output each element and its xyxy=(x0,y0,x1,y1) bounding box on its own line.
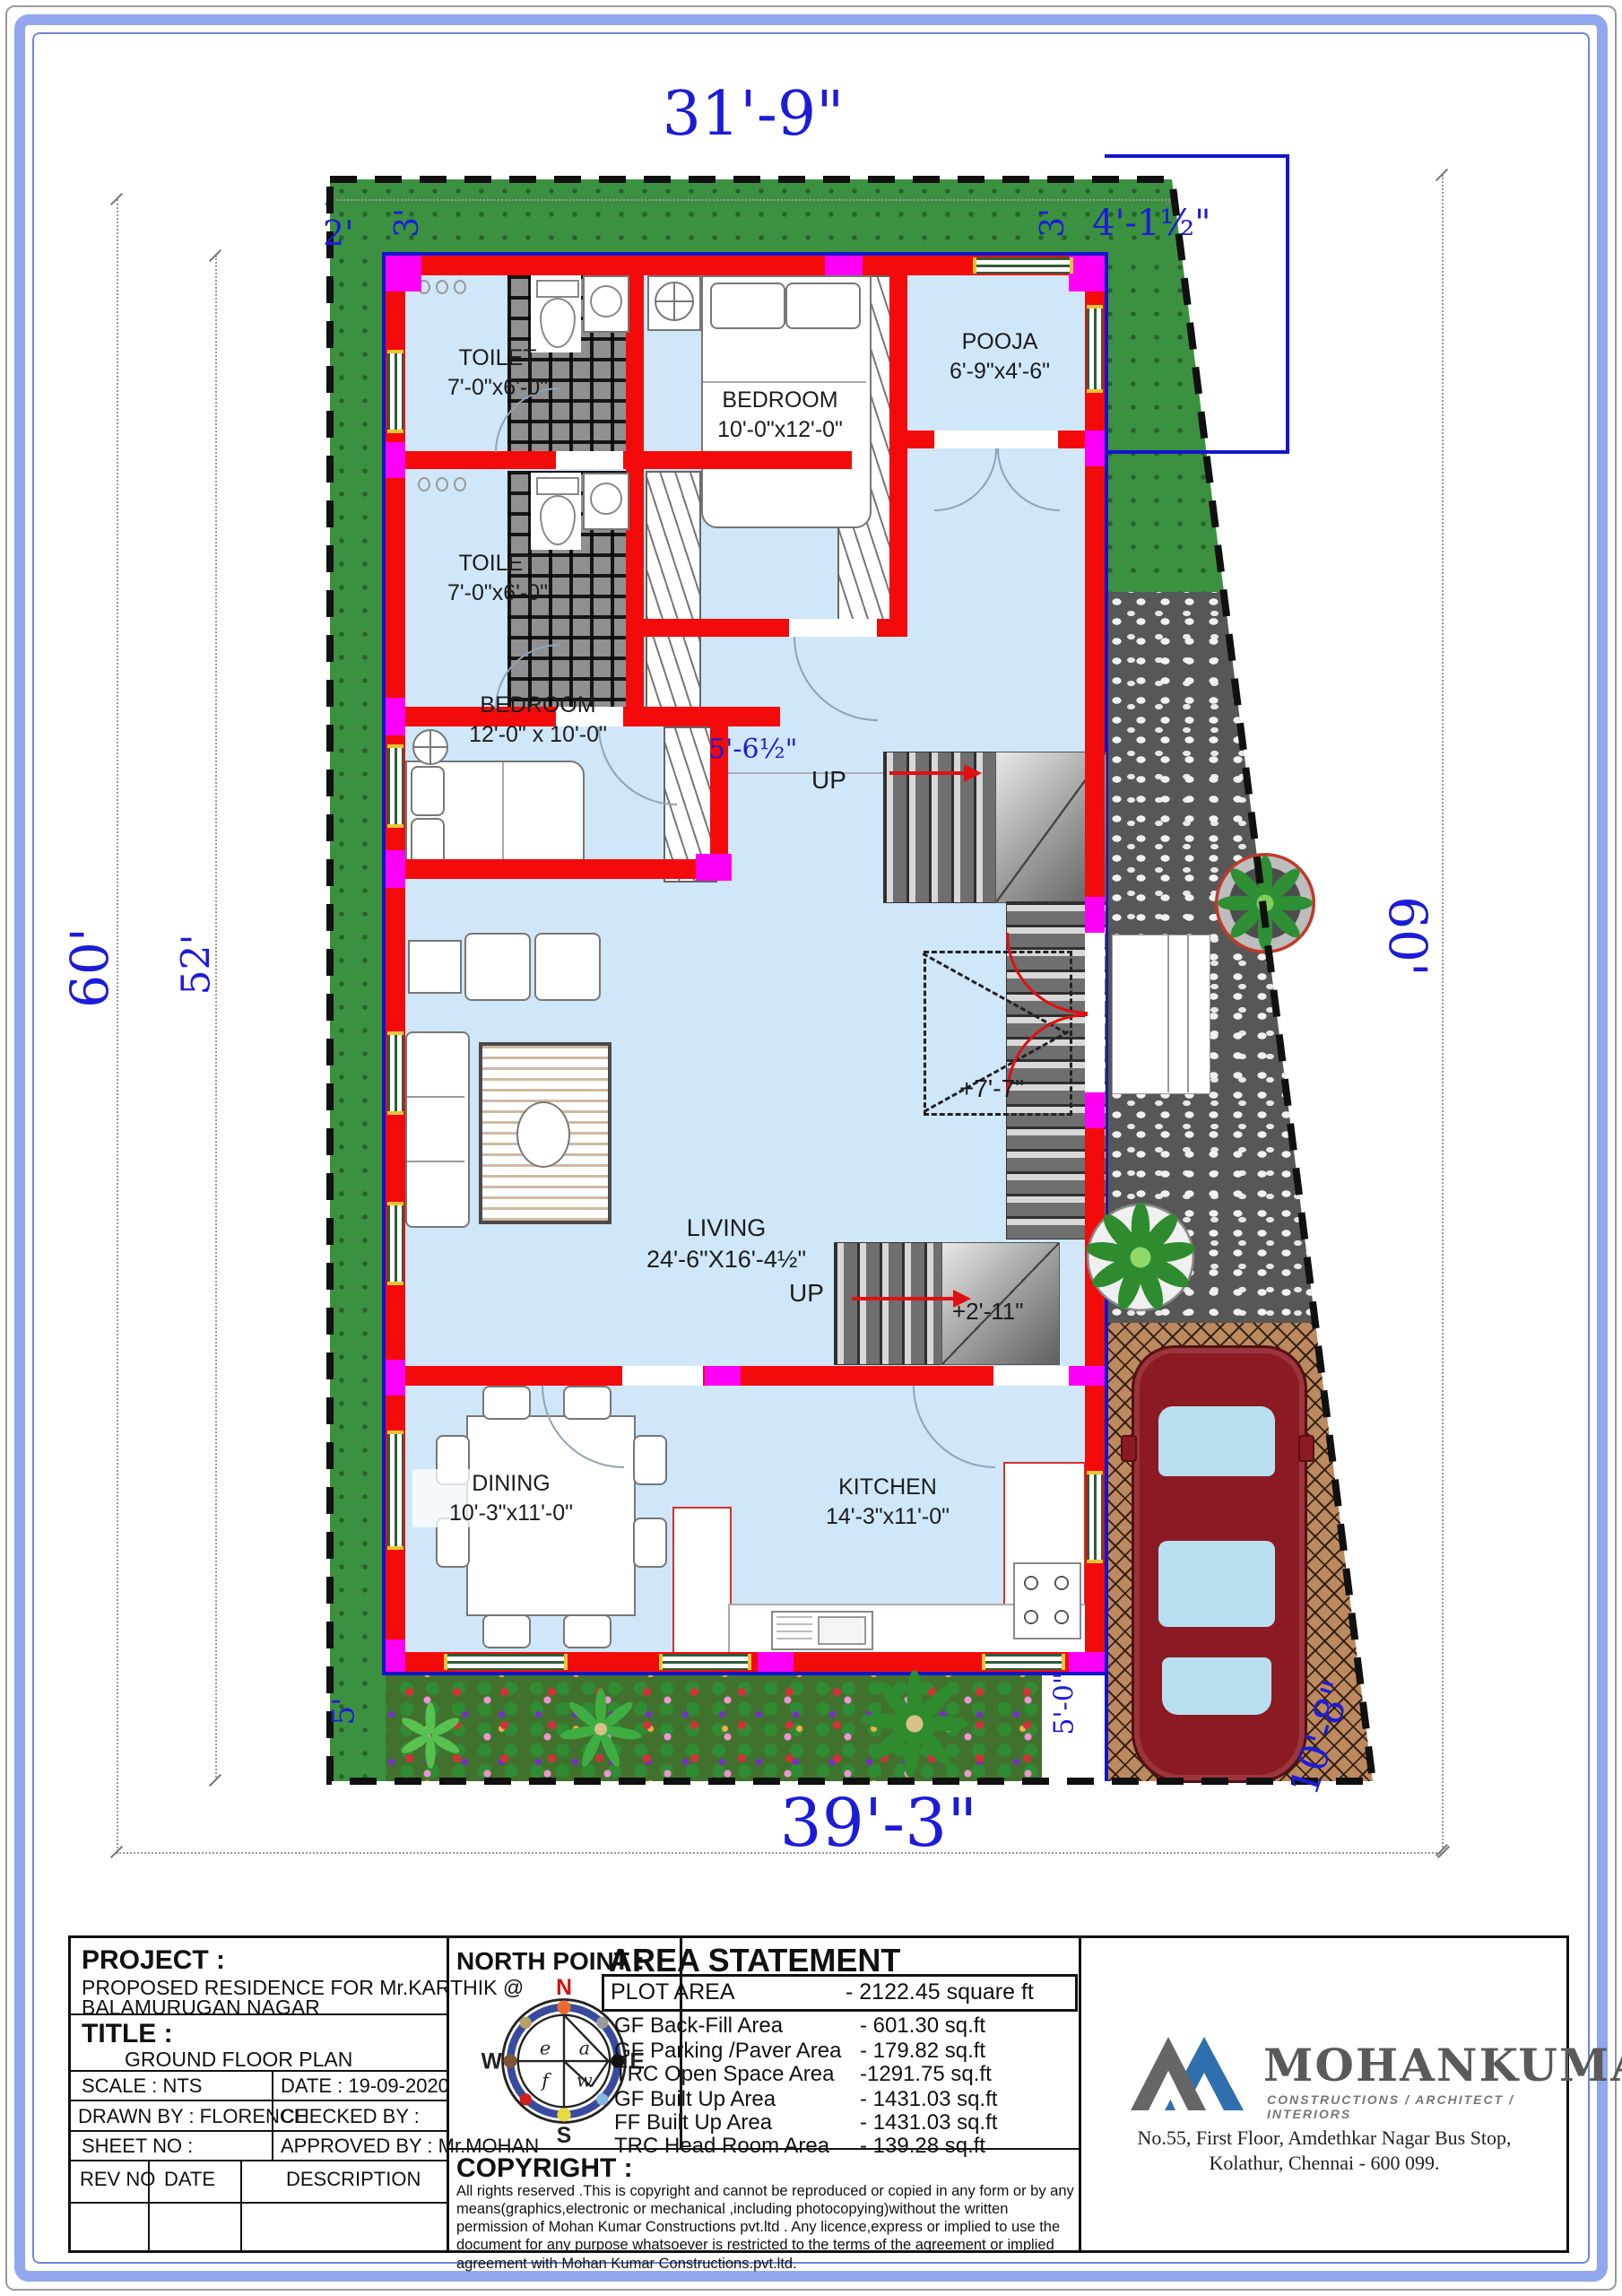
tb-divider xyxy=(1079,1938,1081,2250)
room-label-kitchen: KITCHEN 14'-3"x11'-0" xyxy=(762,1473,1013,1531)
lawn-left-strip xyxy=(330,179,386,1781)
kitchen-sink-bowl xyxy=(818,1616,866,1645)
dining-chair xyxy=(633,1435,667,1485)
room-label-toilet2: TOILET 7'-0"x6'-0" xyxy=(408,549,587,607)
toilet1-basin-bowl xyxy=(590,285,622,317)
area-row-label: FF Built Up Area xyxy=(614,2110,772,2135)
junction xyxy=(386,850,405,888)
tb-row-line xyxy=(71,2202,447,2204)
tb-row-line xyxy=(71,2130,447,2132)
junction xyxy=(1069,256,1105,291)
stair-arrow-1 xyxy=(889,771,966,775)
terrace-outline-right xyxy=(1286,154,1289,453)
dim-top-left-setback: 3' xyxy=(389,208,426,238)
room-size: 14'-3"x11'-0" xyxy=(762,1502,1013,1532)
junction xyxy=(386,442,405,478)
junction xyxy=(386,256,421,291)
junction xyxy=(696,854,732,881)
window-living-1 xyxy=(387,1031,403,1115)
palm-plant xyxy=(861,1670,968,1778)
floor-plan: TOILET 7'-0"x6'-0" BEDROOM 10'-0"x12'-0"… xyxy=(0,0,1622,1910)
company-address-1: No.55, First Floor, Amdethkar Nagar Bus … xyxy=(1082,2126,1566,2150)
copyright-label: COPYRIGHT : xyxy=(456,2153,633,2184)
dim-top-right-setback: 3' xyxy=(1035,208,1071,238)
room-size: 10'-3"x11'-0" xyxy=(412,1499,610,1528)
room-size: 24'-6"X16'-4½" xyxy=(556,1244,897,1275)
junction xyxy=(386,1360,405,1396)
compass-n: N xyxy=(556,1976,572,2000)
compass-inner-e: e xyxy=(540,2037,551,2058)
living-chair-1 xyxy=(464,933,531,1001)
room-name: BEDROOM xyxy=(421,691,655,720)
dining-chair xyxy=(482,1614,531,1648)
wardrobe-strip-a xyxy=(646,471,701,710)
window-dining xyxy=(387,1431,403,1550)
living-sofa xyxy=(405,1031,470,1228)
kitchen-sink-drain-lines xyxy=(776,1616,812,1641)
dim-stair-passage: 5'-6½" xyxy=(708,734,797,765)
room-size: 10'-0"x12'-0" xyxy=(690,415,870,445)
sheet-no: SHEET NO : xyxy=(82,2135,193,2158)
tb-row-line xyxy=(71,2100,447,2101)
bedroom1-lamp xyxy=(655,282,694,321)
dim-right-height: 60' xyxy=(1377,896,1438,977)
junction xyxy=(758,1652,794,1672)
area-row-value: -1291.75 sq.ft xyxy=(860,2062,992,2087)
room-label-pooja: POOJA 6'-9"x4'-6" xyxy=(916,327,1083,386)
verandah-deck-line-1 xyxy=(1167,935,1169,1092)
dim-line-top xyxy=(330,199,1173,201)
rev-date: DATE xyxy=(164,2168,215,2191)
car-windshield xyxy=(1158,1406,1275,1476)
gap-verandah-doors xyxy=(1085,933,1105,1092)
rev-desc: DESCRIPTION xyxy=(286,2168,421,2191)
room-name: KITCHEN xyxy=(762,1473,1013,1502)
car-roof-window xyxy=(1158,1541,1275,1627)
carporch-outline-left xyxy=(1105,1672,1108,1781)
dining-chair xyxy=(633,1518,667,1568)
lawn-right-strip xyxy=(1098,256,1228,592)
gap-toilet1-door xyxy=(556,451,623,469)
junction xyxy=(386,698,405,735)
window-bottom-2 xyxy=(659,1654,751,1670)
dim-line-left-inner xyxy=(215,256,217,1780)
stair-arrow-2 xyxy=(852,1297,955,1300)
room-size: 12'-0" x 10'-0" xyxy=(421,720,655,750)
living-sofa-cushion-line-2 xyxy=(407,1161,464,1162)
company-logo-icon xyxy=(1118,2028,1262,2118)
room-name: DINING xyxy=(412,1469,610,1499)
window-living-2 xyxy=(387,1202,403,1285)
room-label-toilet1: TOILET 7'-0"x6'-0" xyxy=(408,344,587,402)
level-landing: +7'-7" xyxy=(959,1073,1024,1105)
gap-dining-door xyxy=(622,1366,703,1386)
bedroom2-pillow-1 xyxy=(411,766,445,816)
up-label-1: UP xyxy=(811,764,846,796)
area-row-label: TRC Open Space Area xyxy=(614,2062,834,2087)
drawing-sheet: { "plan": { "dims": { "top_width": "31'-… xyxy=(0,0,1622,2296)
window-toilet2 xyxy=(387,744,403,828)
palm-plant xyxy=(395,1700,466,1771)
project-label: PROJECT : xyxy=(82,1945,225,1976)
room-name: TOILET xyxy=(408,549,587,578)
gap-bedroom1-door xyxy=(789,619,877,637)
area-row-value: - 1431.03 sq.ft xyxy=(860,2110,997,2135)
window-bottom-3 xyxy=(982,1654,1065,1670)
dim-left-height: 60' xyxy=(59,927,120,1008)
terrace-outline-bottom xyxy=(1105,450,1289,454)
room-size: 7'-0"x6'-0" xyxy=(408,373,587,403)
area-row-value: - 139.28 sq.ft xyxy=(860,2134,985,2159)
toilet2-shower-icon xyxy=(418,477,466,490)
toilet2-basin-bowl xyxy=(590,483,622,515)
building-outline-bottom xyxy=(382,1672,1108,1675)
plot-area-label: PLOT AREA xyxy=(611,1979,735,2005)
junction xyxy=(1069,1366,1105,1386)
area-row-label: GF Parking /Paver Area xyxy=(614,2039,841,2064)
room-label-living: LIVING 24'-6"X16'-4½" xyxy=(556,1213,897,1275)
dim-line-left-outer xyxy=(117,199,118,1852)
title-label: TITLE : xyxy=(82,2019,173,2049)
toilet1-wc-tank xyxy=(536,280,579,298)
project-line2: BALAMURUGAN NAGAR xyxy=(82,1996,320,2020)
living-side-table xyxy=(408,940,462,994)
area-row-value: - 1431.03 sq.ft xyxy=(860,2087,997,2112)
plot-area-value: - 2122.45 square ft xyxy=(846,1979,1034,2005)
window-kitchen-right xyxy=(1087,1471,1103,1563)
up-label-2: UP xyxy=(789,1277,824,1309)
drawn-by: DRAWN BY : FLORENCE xyxy=(78,2105,307,2128)
compass-inner-w: w xyxy=(577,2070,593,2092)
date: DATE : 19-09-2020 xyxy=(281,2074,449,2098)
kitchen-stove xyxy=(1013,1562,1081,1639)
junction xyxy=(1069,1652,1105,1672)
area-row-value: - 601.30 sq.ft xyxy=(860,2013,985,2039)
dim-bottom-width: 39'-3" xyxy=(717,1785,1040,1862)
bedroom1-pillow-2 xyxy=(785,283,861,329)
title-value: GROUND FLOOR PLAN xyxy=(125,2048,352,2072)
verandah-deck xyxy=(1112,935,1210,1094)
dim-top-left-strip: 2' xyxy=(323,213,354,253)
room-label-bedroom1: BEDROOM 10'-0"x12'-0" xyxy=(690,386,870,444)
title-block: PROJECT : PROPOSED RESIDENCE FOR Mr.KART… xyxy=(68,1935,1569,2253)
car-mirror-left xyxy=(1121,1435,1137,1462)
room-name: BEDROOM xyxy=(690,386,870,415)
dining-chair xyxy=(482,1386,531,1420)
junction xyxy=(825,256,863,275)
junction xyxy=(705,1366,741,1386)
area-row-label: GF Back-Fill Area xyxy=(614,2013,783,2039)
window-toilet1 xyxy=(387,350,403,433)
company-tagline: CONSTRUCTIONS / ARCHITECT / INTERIORS xyxy=(1267,2092,1566,2121)
tb-row-line xyxy=(71,2160,447,2161)
tb-col-line xyxy=(240,2160,242,2250)
junction xyxy=(1085,897,1105,933)
window-bedroom1 xyxy=(973,257,1073,274)
copyright-text: All rights reserved .This is copyright a… xyxy=(456,2182,1075,2273)
kitchen-counter-left xyxy=(672,1507,732,1656)
toilet2-wc-tank xyxy=(536,477,579,495)
dim-bottom-right-setback: 5'-0" xyxy=(1049,1672,1080,1735)
room-size: 7'-0"x6'-0" xyxy=(408,578,587,608)
stair-arrow-1-head xyxy=(964,764,982,782)
bedroom1-pillow-1 xyxy=(710,283,785,329)
palm-plant xyxy=(556,1684,646,1774)
junction xyxy=(1085,430,1105,466)
wall-bedroom1-right xyxy=(889,256,907,628)
compass-w: W xyxy=(481,2050,503,2074)
wall-bedroom2-bottom xyxy=(386,859,728,879)
living-sofa-cushion-line-1 xyxy=(407,1096,464,1098)
terrace-outline-top xyxy=(1105,154,1289,158)
area-row-value: - 179.82 sq.ft xyxy=(860,2039,985,2064)
scale: SCALE : NTS xyxy=(82,2074,202,2098)
room-label-dining: DINING 10'-3"x11'-0" xyxy=(412,1469,610,1527)
company-address-2: Kolathur, Chennai - 600 099. xyxy=(1082,2152,1566,2175)
gap-kitchen-door xyxy=(993,1366,1072,1386)
room-size: 6'-9"x4'-6" xyxy=(916,357,1083,387)
junction xyxy=(386,1639,405,1672)
dim-bottom-left-setback: 5' xyxy=(325,1698,361,1726)
room-label-bedroom2: BEDROOM 12'-0" x 10'-0" xyxy=(421,691,655,749)
dim-left-inner-height: 52' xyxy=(174,934,220,995)
gap-pooja-doors xyxy=(934,430,1058,448)
window-bottom-1 xyxy=(444,1654,568,1670)
room-name: LIVING xyxy=(556,1213,897,1244)
area-row-label: TRC Head Room Area xyxy=(614,2134,829,2159)
bedroom2-blanket-line xyxy=(502,762,504,872)
car-rear-window xyxy=(1162,1657,1271,1715)
company-name: MOHANKUMAR xyxy=(1263,2039,1622,2092)
verandah-deck-line-2 xyxy=(1187,935,1189,1092)
level-mid-landing: +2'-11" xyxy=(952,1297,1024,1327)
rev-no: REV NO xyxy=(80,2168,155,2191)
checked-by: CHECKED BY : xyxy=(281,2105,420,2128)
dim-line-right xyxy=(1442,175,1444,1850)
bedroom1-blanket-line xyxy=(703,381,866,383)
toilet1-shower-icon xyxy=(418,280,466,292)
junction xyxy=(1085,1092,1105,1128)
living-rug-center xyxy=(516,1101,570,1168)
window-pooja xyxy=(1087,305,1103,393)
plant-pot-2 xyxy=(1083,1200,1198,1315)
dining-chair xyxy=(563,1614,612,1648)
stair-dim-line xyxy=(716,772,886,774)
room-name: TOILET xyxy=(408,344,587,373)
compass-s: S xyxy=(557,2124,571,2146)
compass-inner-a: a xyxy=(579,2037,590,2058)
dim-top-right-offset: 4'-1½" xyxy=(1092,203,1211,244)
plant-pot-1 xyxy=(1212,850,1318,956)
living-chair-2 xyxy=(534,933,601,1001)
car-mirror-right xyxy=(1298,1435,1314,1462)
dim-top-width: 31'-9" xyxy=(574,79,932,150)
room-name: POOJA xyxy=(916,327,1083,357)
area-row-label: GF Built Up Area xyxy=(614,2087,776,2112)
